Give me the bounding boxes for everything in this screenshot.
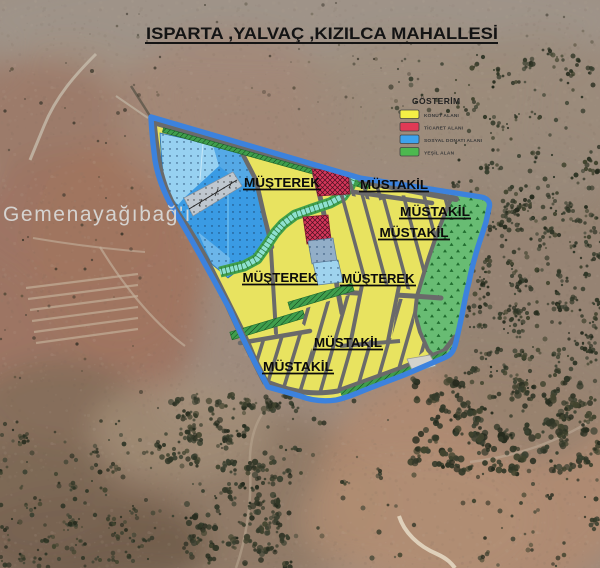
svg-text:GÖSTERİM: GÖSTERİM	[412, 96, 461, 106]
svg-text:SOSYAL DONATI ALANI: SOSYAL DONATI ALANI	[424, 138, 483, 144]
svg-text:MÜŞTEREK: MÜŞTEREK	[244, 175, 321, 190]
svg-text:Gemenayağıbağ'ı: Gemenayağıbağ'ı	[3, 203, 192, 226]
svg-text:MÜSTAKİL: MÜSTAKİL	[380, 225, 449, 240]
svg-text:YEŞİL ALAN: YEŞİL ALAN	[424, 150, 455, 157]
svg-text:MÜSTAKİL: MÜSTAKİL	[360, 177, 428, 192]
svg-text:MÜSTAKİL: MÜSTAKİL	[314, 335, 382, 350]
svg-text:ISPARTA ,YALVAÇ ,KIZILCA MAHAL: ISPARTA ,YALVAÇ ,KIZILCA MAHALLESİ	[146, 24, 498, 43]
svg-text:TİCARET ALANI: TİCARET ALANI	[424, 125, 464, 132]
svg-text:MÜSTAKİL: MÜSTAKİL	[263, 359, 333, 374]
svg-text:KONUT ALANI: KONUT ALANI	[424, 113, 460, 119]
svg-text:MÜŞTEREK: MÜŞTEREK	[342, 271, 416, 286]
svg-text:MÜŞTEREK: MÜŞTEREK	[243, 270, 319, 285]
svg-text:MÜSTAKİL: MÜSTAKİL	[400, 204, 470, 219]
